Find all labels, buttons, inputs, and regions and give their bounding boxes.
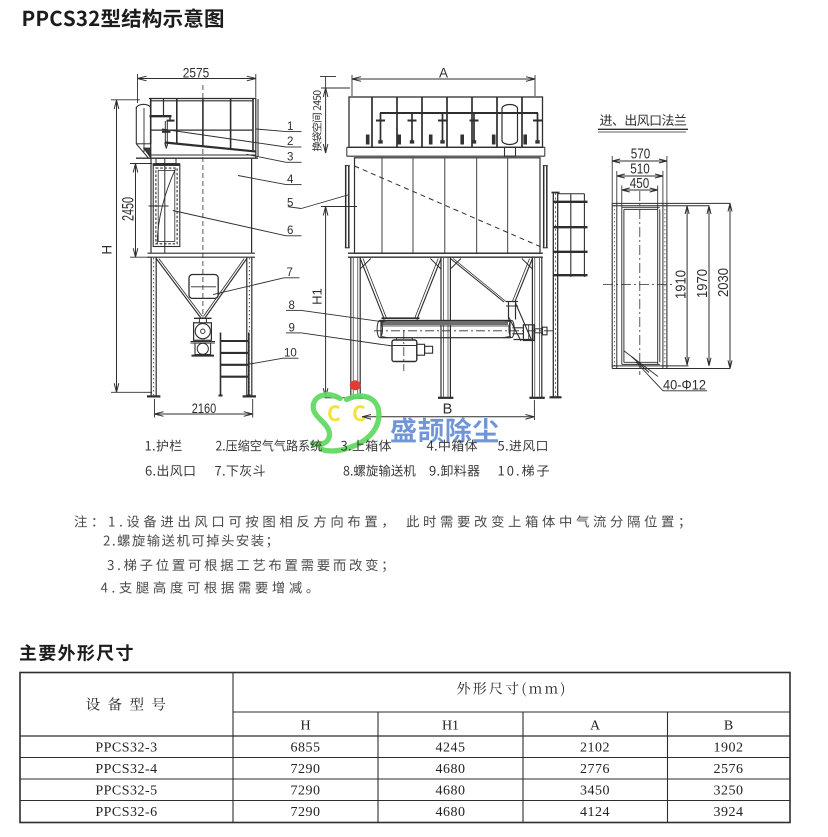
svg-text:3: 3 [287, 152, 293, 164]
svg-text:H: H [100, 245, 115, 255]
svg-text:7290: 7290 [291, 762, 321, 777]
svg-text:6: 6 [287, 225, 293, 237]
svg-text:A: A [590, 719, 601, 734]
svg-text:4124: 4124 [580, 805, 610, 820]
svg-text:1902: 1902 [714, 741, 744, 756]
svg-text:450: 450 [630, 175, 650, 192]
svg-text:1: 1 [287, 121, 293, 133]
svg-text:1910: 1910 [674, 270, 690, 299]
svg-text:4: 4 [287, 174, 294, 186]
svg-text:3250: 3250 [714, 784, 744, 799]
svg-text:2450: 2450 [120, 197, 138, 221]
svg-text:4680: 4680 [436, 784, 466, 799]
svg-text:2160: 2160 [192, 401, 217, 416]
svg-text:2: 2 [287, 136, 293, 148]
svg-text:2102: 2102 [580, 741, 610, 756]
svg-text:H1: H1 [310, 288, 325, 305]
svg-text:PPCS32-6: PPCS32-6 [95, 805, 157, 820]
svg-text:PPCS32-5: PPCS32-5 [95, 784, 157, 799]
svg-text:1970: 1970 [695, 269, 711, 298]
svg-text:A: A [439, 66, 448, 81]
svg-text:H1: H1 [442, 719, 459, 734]
svg-text:7290: 7290 [291, 784, 321, 799]
svg-text:PPCS32-3: PPCS32-3 [95, 741, 157, 756]
svg-text:PPCS32-4: PPCS32-4 [95, 762, 157, 777]
svg-text:H: H [300, 719, 310, 734]
svg-text:4680: 4680 [436, 805, 466, 820]
svg-text:B: B [724, 719, 733, 734]
svg-text:B: B [443, 402, 453, 418]
svg-text:4245: 4245 [436, 741, 466, 756]
svg-text:4680: 4680 [436, 762, 466, 777]
svg-text:2576: 2576 [714, 762, 744, 777]
svg-text:7290: 7290 [291, 805, 321, 820]
svg-text:3924: 3924 [714, 805, 744, 820]
svg-text:40-Φ12: 40-Φ12 [663, 377, 706, 393]
svg-text:2575: 2575 [183, 65, 210, 81]
svg-text:3450: 3450 [580, 784, 610, 799]
svg-text:2030: 2030 [716, 268, 732, 297]
svg-text:2776: 2776 [580, 762, 610, 777]
svg-text:6855: 6855 [291, 741, 321, 756]
